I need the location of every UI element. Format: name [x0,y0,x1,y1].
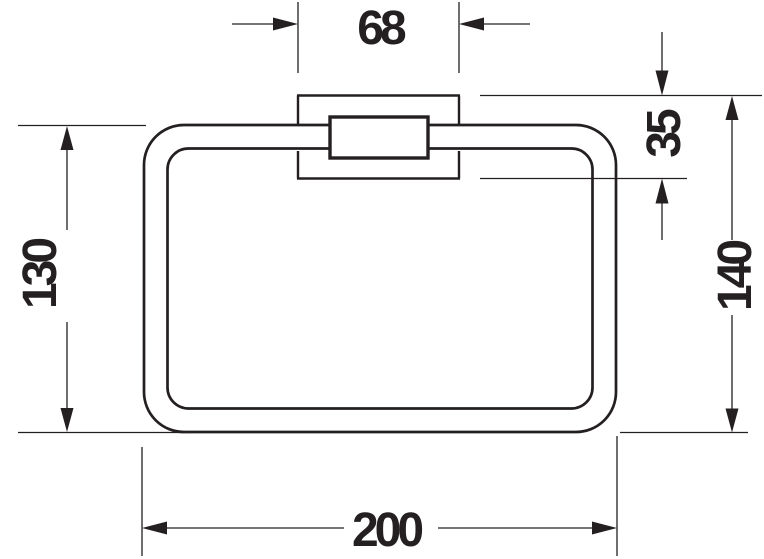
arrowhead-right-icon [273,18,298,31]
arrowhead-up-icon [61,126,74,150]
dimension-ring-width: 200 [142,436,617,557]
arrowhead-up-icon [656,179,669,204]
arrowhead-right-icon [592,522,617,535]
dimension-label-overall-height: 140 [709,241,762,311]
arrowhead-up-icon [726,96,739,120]
dimension-label-mount-height: 35 [638,109,691,158]
arrowhead-left-icon [459,18,484,31]
dimension-mount-height: 35 [480,32,762,240]
arrowhead-down-icon [726,409,739,433]
arrowhead-down-icon [61,408,74,432]
dimension-label-ring-height: 130 [14,239,67,309]
towel-ring-technical-drawing: 68 35 140 130 [0,0,764,559]
dimension-mount-width: 68 [232,2,530,73]
arrowhead-left-icon [142,522,167,535]
towel-ring-outline [144,125,616,432]
arrowhead-down-icon [656,71,669,96]
dimension-label-ring-width: 200 [352,504,422,557]
ring-inner-contour [168,149,593,409]
mount-plate [330,117,428,158]
drawing-canvas: 68 35 140 130 [0,0,764,559]
ring-outer-contour [144,125,616,432]
dimension-label-mount-width: 68 [357,2,406,55]
dimension-ring-height: 130 [14,126,190,433]
